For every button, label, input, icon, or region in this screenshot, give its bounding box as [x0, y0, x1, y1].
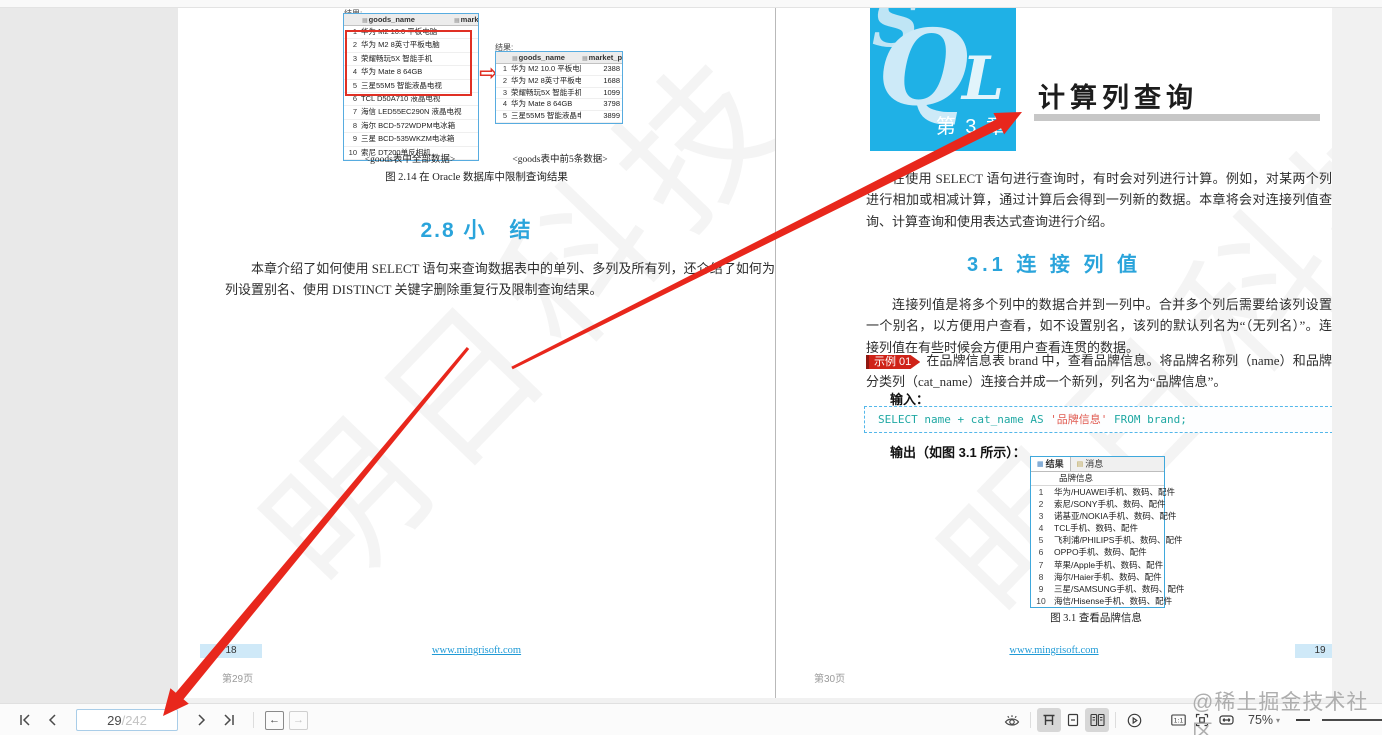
goods-top5-rows: 1 华为 M2 10.0 平板电脑 2388 2 华为 M2 8英寸平板电脑 1… [496, 64, 622, 123]
row-number: 4 [496, 99, 509, 110]
row-number: 9 [1031, 583, 1053, 595]
column-icon: ▦ [512, 56, 518, 62]
row-number: 8 [1031, 571, 1053, 583]
market-price-cell: 2388 [581, 64, 622, 75]
table-row: 2 华为 M2 8英寸平板电脑 1688 [496, 76, 622, 88]
table-row: 7 海信 LED55EC290N 液晶电视 [344, 106, 478, 119]
row-number: 7 [344, 106, 359, 118]
next-page-button[interactable] [189, 708, 213, 732]
pdf-reader-window: 明日科技 结果: ▦goods_name ▦market_price 1 华为 … [0, 0, 1382, 735]
tab-result: ▦结果 [1031, 457, 1071, 471]
chapter-summary-paragraph: 本章介绍了如何使用 SELECT 语句来查询数据表中的单列、多列及所有列，还介绍… [225, 258, 775, 301]
result-row: 7 苹果/Apple手机、数码、配件 [1031, 559, 1164, 571]
column-market-price: market_price [589, 53, 622, 62]
sql-code-box: SELECT name + cat_name AS '品牌信息' FROM br… [864, 406, 1332, 433]
table-row: 5 三星55M5 智能液晶电视 3899 [496, 111, 622, 123]
row-number: 5 [496, 111, 509, 122]
sql-code-tail: FROM brand; [1107, 413, 1186, 426]
table-row: 8 海尔 BCD-572WDPM电冰箱 [344, 120, 478, 133]
result-grid-tabs: ▦结果 ▤消息 [1031, 457, 1164, 472]
first-page-button[interactable] [12, 708, 36, 732]
tab-message: ▤消息 [1071, 457, 1110, 471]
row-number: 2 [1031, 498, 1053, 510]
footer-page-label: 第29页 [222, 670, 253, 685]
column-market-price: market_price [461, 15, 478, 24]
row-number: 4 [1031, 522, 1053, 534]
column-icon: ▦ [362, 18, 368, 24]
brand-info-cell: OPPO手机、数码、配件 [1053, 546, 1147, 558]
goods-top5-table: ▦goods_name ▦market_price 1 华为 M2 10.0 平… [495, 51, 623, 124]
section-3-1-paragraph: 连接列值是将多个列中的数据合并到一列中。合并多个列后需要给该列设置一个别名，以方… [866, 294, 1332, 358]
column-icon: ▦ [454, 18, 460, 24]
row-number: 2 [496, 76, 509, 87]
brand-info-cell: 华为/HUAWEI手机、数码、配件 [1053, 486, 1175, 498]
chevron-left-icon [45, 712, 61, 728]
brand-info-cell: 飞利浦/PHILIPS手机、数码、配件 [1053, 534, 1182, 546]
chapter-title-underline [1034, 114, 1320, 121]
grid-tab-icon: ▦ [1037, 458, 1044, 471]
example-01-badge: 示例 01 [866, 355, 920, 369]
result-row: 1 华为/HUAWEI手机、数码、配件 [1031, 486, 1164, 498]
previous-page-button[interactable] [41, 708, 65, 732]
eye-protection-button[interactable] [1000, 708, 1024, 732]
result-grid-rows: 1 华为/HUAWEI手机、数码、配件 2 索尼/SONY手机、数码、配件 3 … [1031, 486, 1164, 607]
row-number: 1 [496, 64, 509, 75]
page-number-input[interactable]: 29 /242 [76, 709, 178, 731]
page-divider [775, 8, 776, 698]
toolbar-separator [1030, 712, 1031, 728]
row-number: 3 [1031, 510, 1053, 522]
goods-name-cell: 荣耀畅玩5X 智能手机 [509, 88, 581, 99]
row-number: 1 [1031, 486, 1053, 498]
output-label: 输出（如图 3.1 所示）： [890, 442, 1026, 461]
back-arrow-icon: ← [269, 714, 280, 726]
document-page-left: 明日科技 结果: ▦goods_name ▦market_price 1 华为 … [178, 8, 775, 698]
table-row: 4 华为 Mate 8 64GB 3798 [496, 99, 622, 111]
reader-toolbar: 29 /242 ← → [0, 703, 1382, 735]
sql-logo-l: L [962, 44, 1004, 114]
goods-name-cell: 海信 LED55EC290N 液晶电视 [359, 106, 480, 118]
footer-website-link[interactable]: www.mingrisoft.com [776, 645, 1332, 656]
goods-full-table-header: ▦goods_name ▦market_price [344, 14, 478, 26]
footer-website-link[interactable]: www.mingrisoft.com [178, 645, 775, 656]
row-number: 9 [344, 133, 359, 145]
forward-arrow-icon: → [293, 714, 304, 726]
first-page-icon [16, 712, 32, 728]
toolbar-separator [253, 712, 254, 728]
brand-info-cell: 海尔/Haier手机、数码、配件 [1053, 571, 1162, 583]
column-goods-name: goods_name [369, 15, 415, 24]
actual-size-label: 1:1 [1173, 717, 1183, 724]
eye-icon [1003, 711, 1021, 729]
last-page-icon [222, 712, 238, 728]
footer-page-label: 第30页 [814, 670, 845, 685]
result-row: 8 海尔/Haier手机、数码、配件 [1031, 571, 1164, 583]
result-row: 10 海信/Hisense手机、数码、配件 [1031, 595, 1164, 607]
play-circle-icon [1126, 712, 1143, 729]
sql-code-alias: '品牌信息' [1050, 413, 1107, 426]
row-number: 8 [344, 120, 359, 132]
section-3-1-heading: 3.1 连 接 列 值 [776, 248, 1332, 277]
brand-info-cell: TCL手机、数码、配件 [1053, 522, 1138, 534]
single-page-icon [1065, 712, 1081, 728]
result-row: 9 三星/SAMSUNG手机、数码、配件 [1031, 583, 1164, 595]
current-page-value: 29 [107, 713, 121, 728]
market-price-cell: 3798 [581, 99, 622, 110]
double-page-icon [1089, 712, 1106, 728]
row-number: 7 [1031, 559, 1053, 571]
goods-name-cell: 三星 BCD-535WKZM电冰箱 [359, 133, 480, 145]
chapter-intro-paragraph: 在使用 SELECT 语句进行查询时，有时会对列进行计算。例如，对某两个列进行相… [866, 168, 1332, 232]
last-page-button[interactable] [218, 708, 242, 732]
result-row: 4 TCL手机、数码、配件 [1031, 522, 1164, 534]
column-icon: ▦ [582, 56, 588, 62]
page-number-corner: 19 [1295, 644, 1332, 658]
brand-info-cell: 苹果/Apple手机、数码、配件 [1053, 559, 1163, 571]
history-forward-button[interactable]: → [289, 711, 308, 730]
brand-info-cell: 海信/Hisense手机、数码、配件 [1053, 595, 1172, 607]
document-page-right: 明日科技 S Q L 第 3 章 计算列查询 在使用 SELECT 语句进行查询… [776, 8, 1332, 698]
row-number: 10 [1031, 595, 1053, 607]
goods-name-cell: 三星55M5 智能液晶电视 [509, 111, 581, 122]
table-row: 3 荣耀畅玩5X 智能手机 1099 [496, 88, 622, 100]
message-tab-icon: ▤ [1077, 458, 1084, 471]
actual-size-button[interactable]: 1:1 [1166, 708, 1190, 732]
section-2-8-heading: 2.8 小 结 [178, 214, 775, 244]
fit-width-mode-icon [1041, 712, 1057, 728]
history-back-button[interactable]: ← [265, 711, 284, 730]
fit-width-mode-button[interactable] [1037, 708, 1061, 732]
result-row: 5 飞利浦/PHILIPS手机、数码、配件 [1031, 534, 1164, 546]
chapter-number-label: 第 3 章 [936, 110, 1008, 139]
brand-info-cell: 三星/SAMSUNG手机、数码、配件 [1053, 583, 1184, 595]
actual-size-icon: 1:1 [1170, 712, 1187, 728]
figure-2-14-caption: 图 2.14 在 Oracle 数据库中限制查询结果 [178, 169, 775, 184]
top-strip [0, 0, 1382, 8]
table-row: 9 三星 BCD-535WKZM电冰箱 [344, 133, 478, 146]
auto-play-button[interactable] [1122, 708, 1146, 732]
example-01-block: 示例 01在品牌信息表 brand 中，查看品牌信息。将品牌名称列（name）和… [866, 350, 1332, 393]
market-price-cell: 3899 [581, 111, 622, 122]
example-01-text: 在品牌信息表 brand 中，查看品牌信息。将品牌名称列（name）和品牌分类列… [866, 353, 1332, 389]
brand-info-cell: 索尼/SONY手机、数码、配件 [1053, 498, 1165, 510]
page-navigation-group: 29 /242 ← → [12, 704, 308, 735]
result-row: 6 OPPO手机、数码、配件 [1031, 546, 1164, 558]
goods-name-cell: 华为 M2 10.0 平板电脑 [509, 64, 581, 75]
goods-top5-table-header: ▦goods_name ▦market_price [496, 52, 622, 64]
row-number: 3 [496, 88, 509, 99]
total-pages-value: /242 [122, 713, 147, 728]
table-top5-caption: <goods表中前5条数据> [460, 151, 660, 165]
row-number: 6 [1031, 546, 1053, 558]
market-price-cell: 1688 [581, 76, 622, 87]
chapter-3-badge: S Q L 第 3 章 [870, 8, 1016, 151]
goods-name-cell: 海尔 BCD-572WDPM电冰箱 [359, 120, 480, 132]
result-row: 3 诺基亚/NOKIA手机、数码、配件 [1031, 510, 1164, 522]
goods-name-cell: 华为 M2 8英寸平板电脑 [509, 76, 581, 87]
site-watermark: @稀土掘金技术社区 [1192, 686, 1382, 735]
thumbnail-sidebar[interactable] [0, 8, 179, 703]
column-goods-name: goods_name [519, 53, 565, 62]
top5-highlight-rect [345, 30, 472, 96]
page-watermark: 明日科技 [208, 8, 775, 629]
single-page-view-button[interactable] [1061, 708, 1085, 732]
chapter-title: 计算列查询 [1038, 76, 1198, 115]
toolbar-separator [1115, 712, 1116, 728]
result-grid-column-header: 品牌信息 [1031, 472, 1164, 486]
double-page-view-button[interactable] [1085, 708, 1109, 732]
brand-info-cell: 诺基亚/NOKIA手机、数码、配件 [1053, 510, 1176, 522]
chevron-right-icon [193, 712, 209, 728]
figure-3-1-caption: 图 3.1 查看品牌信息 [1000, 610, 1192, 625]
table-row: 1 华为 M2 10.0 平板电脑 2388 [496, 64, 622, 76]
query-result-grid: ▦结果 ▤消息 品牌信息 1 华为/HUAWEI手机、数码、配件 2 索尼/SO… [1030, 456, 1165, 608]
result-row: 2 索尼/SONY手机、数码、配件 [1031, 498, 1164, 510]
sql-code: SELECT name + cat_name AS [878, 413, 1050, 426]
row-number: 5 [1031, 534, 1053, 546]
goods-name-cell: 华为 Mate 8 64GB [509, 99, 581, 110]
market-price-cell: 1099 [581, 88, 622, 99]
